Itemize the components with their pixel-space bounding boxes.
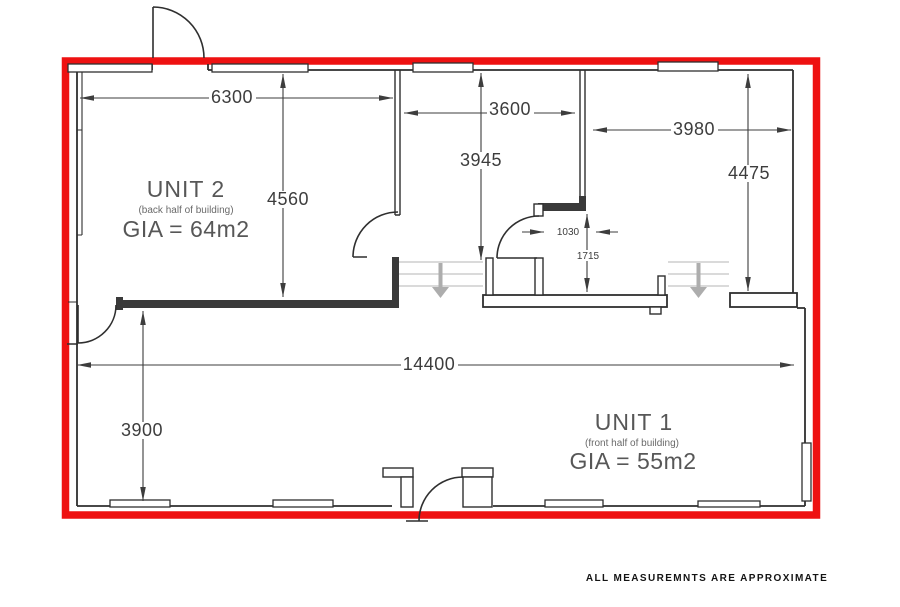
unit-dividing-wall [117,300,398,308]
lobby-door-hinge-cap [534,204,543,216]
window-bottom-4 [698,501,760,507]
unit1-gia: GIA = 55m2 [569,448,696,474]
lobby-post-left [486,258,493,295]
right-front-wall [730,293,797,307]
entrance-left-jamb [392,257,399,308]
measurements-note: ALL MEASUREMNTS ARE APPROXIMATE [586,573,828,584]
dim-3900-label: 3900 [121,420,163,440]
unit-dividing-wall-cap [116,297,123,310]
window-right [802,443,811,501]
dim-1030-label: 1030 [557,227,580,238]
unit1-title: UNIT 1 [595,409,673,435]
lobby-notch [650,307,661,314]
dim-3600-label: 3600 [489,99,531,119]
door-post-cap-left [383,468,413,477]
window-bottom-2 [273,500,333,507]
dim-4560-label: 4560 [267,189,309,209]
door-post-right [463,477,492,507]
dim-4475-label: 4475 [728,163,770,183]
door-post-left [401,477,413,507]
lobby-jog-wall [538,203,585,211]
dim-14400-label: 14400 [403,354,456,374]
unit2-gia: GIA = 64m2 [122,216,249,242]
window-top-3 [413,63,473,72]
lobby-front-wall [483,295,667,307]
unit2-subtitle: (back half of building) [138,205,233,216]
window-bottom-3 [545,500,603,507]
window-top-2 [212,64,308,72]
unit2-title: UNIT 2 [147,176,225,202]
window-bottom-1 [110,500,170,507]
dim-6300-label: 6300 [211,87,253,107]
dim-3980-label: 3980 [673,119,715,139]
dim-1715-label: 1715 [577,251,600,262]
divider-lower-chunk [579,196,586,211]
floor-plan-page: 6300 4560 3600 3945 3980 4475 14400 3900… [0,0,900,607]
window-top-1 [68,64,152,72]
lobby-post-right [658,276,665,295]
dim-3945-label: 3945 [460,150,502,170]
door-post-cap-right [462,468,493,477]
lobby-post-mid [535,258,543,295]
floor-plan-drawing: 6300 4560 3600 3945 3980 4475 14400 3900… [0,0,900,607]
window-top-4 [658,62,718,71]
